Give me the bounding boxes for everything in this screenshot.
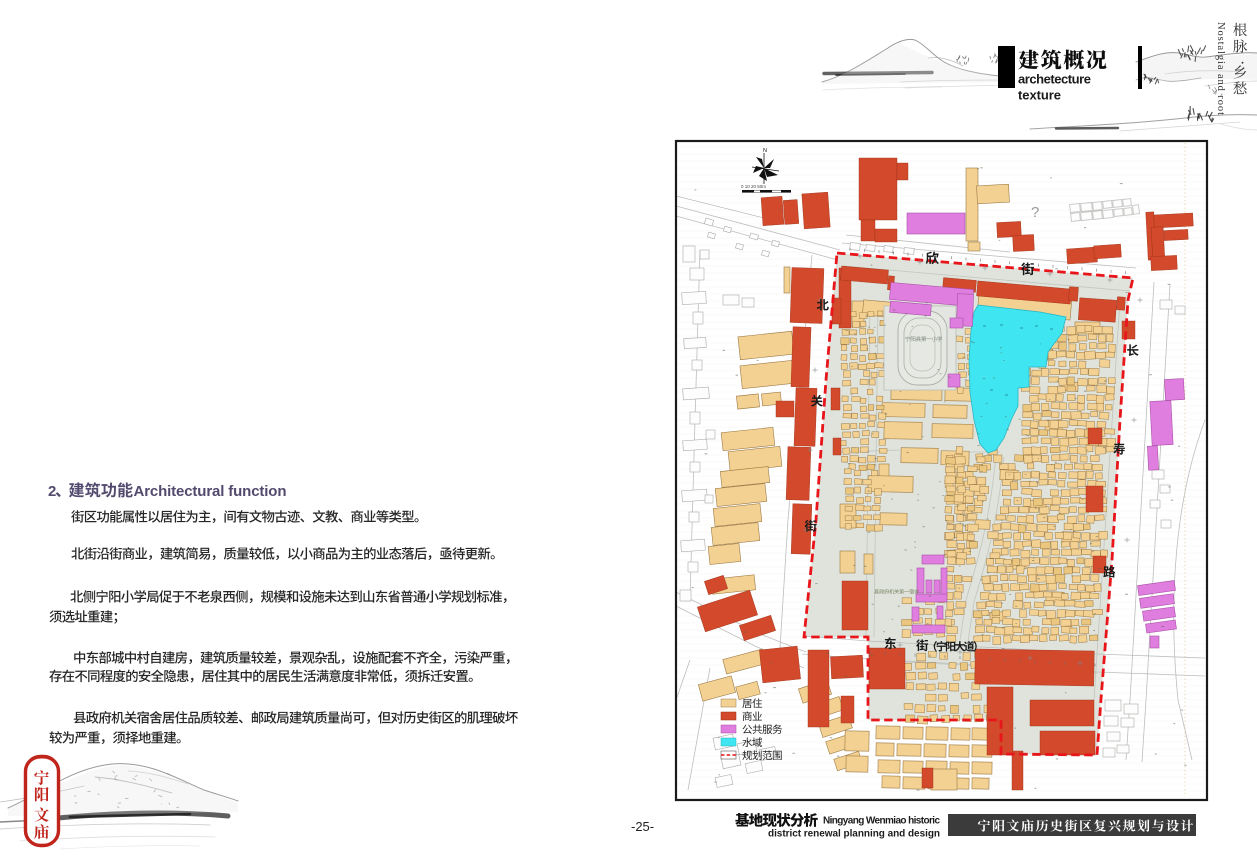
svg-text:Architectural function: Architectural function	[134, 483, 287, 500]
svg-text:N: N	[763, 148, 767, 154]
svg-text:district renewal planning and: district renewal planning and design	[768, 829, 940, 840]
svg-text:?: ?	[1031, 204, 1039, 221]
svg-text:Nostalgia and root: Nostalgia and root	[1215, 22, 1226, 115]
svg-text:2: 2	[48, 483, 56, 500]
svg-text:archetecture: archetecture	[1018, 72, 1091, 87]
svg-text:Ningyang Wenmiao historic: Ningyang Wenmiao historic	[823, 816, 940, 827]
svg-text:texture: texture	[1018, 88, 1061, 103]
svg-text:0 10 20 50m: 0 10 20 50m	[741, 184, 766, 189]
svg-text:-25-: -25-	[631, 819, 654, 834]
